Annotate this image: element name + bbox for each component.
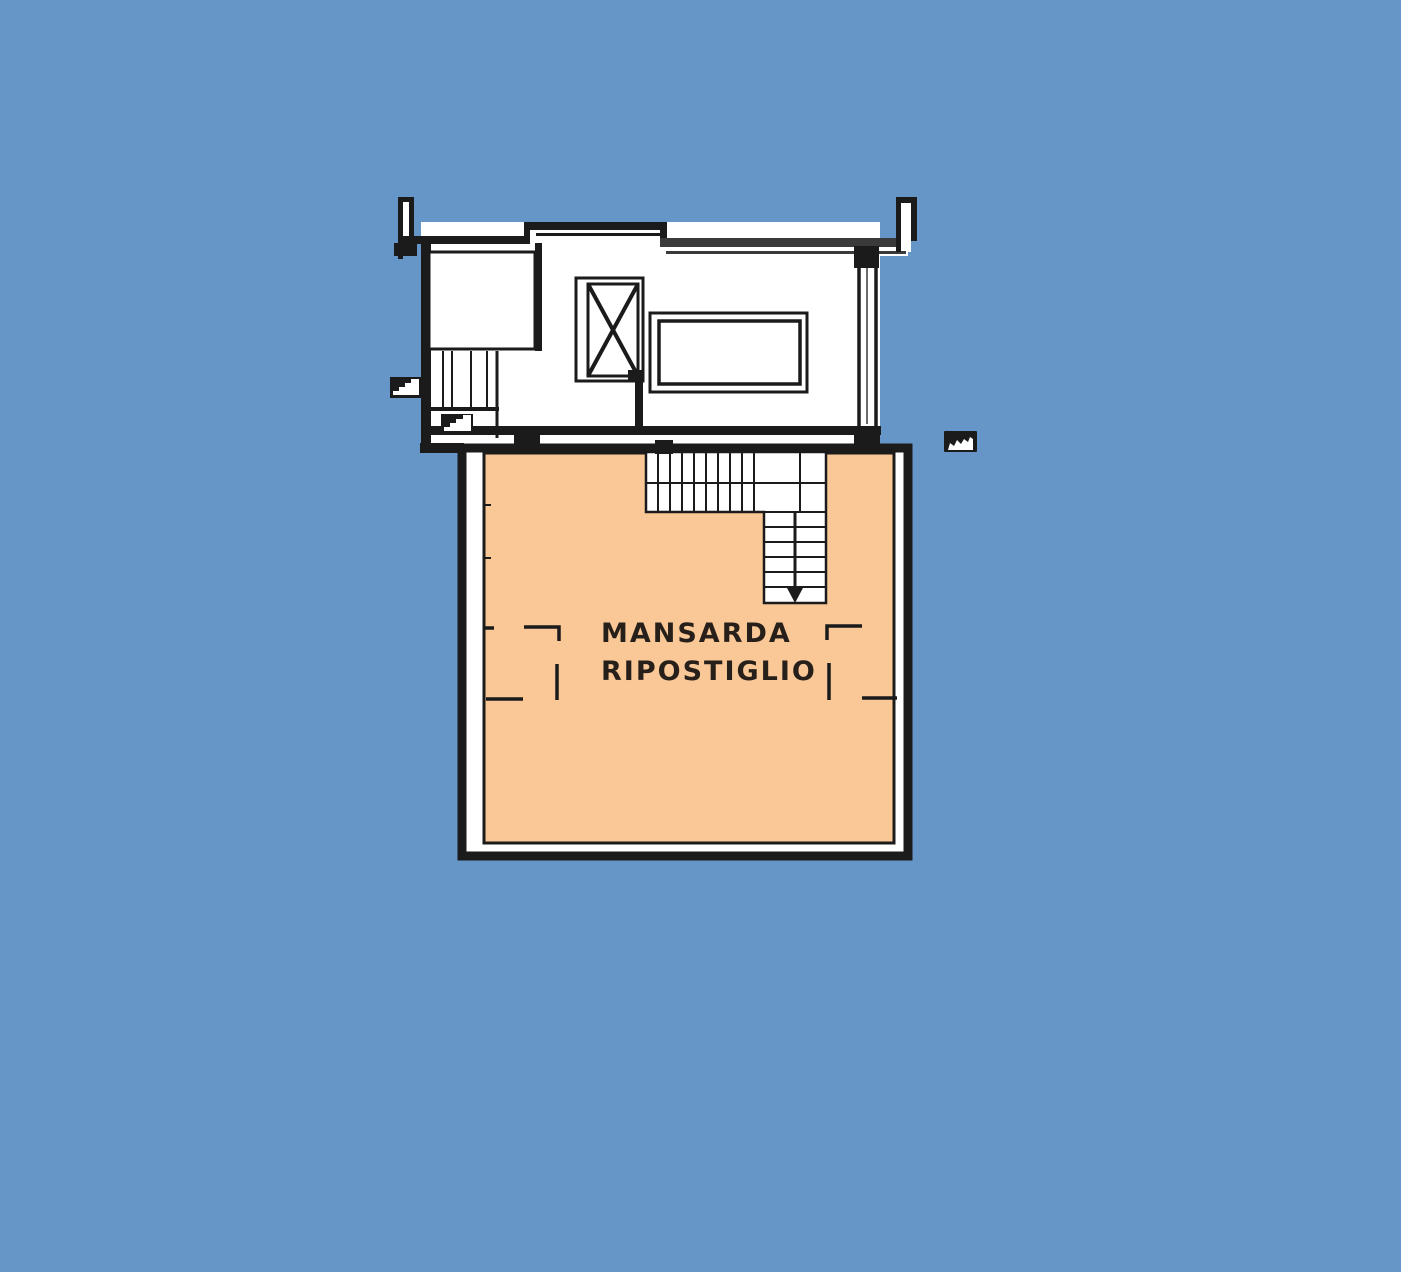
attic-room-section: MANSARDA RIPOSTIGLIO (420, 440, 908, 856)
roof-opening-outer (650, 313, 807, 392)
closet-partition-wall (535, 243, 542, 351)
top-wall-right (660, 238, 901, 247)
right-chimney-fill (901, 203, 911, 252)
left-chimney-base (394, 243, 417, 256)
left-chimney-east (409, 201, 414, 242)
bottom-wall (421, 426, 881, 435)
top-wall-step-left (524, 222, 530, 243)
shaft-wall-below (635, 380, 643, 432)
top-wall-left (403, 236, 530, 244)
attic-wall-stub-left (420, 443, 464, 453)
upper-floor-section (390, 197, 917, 454)
top-wall-raised-inner-line (536, 233, 660, 236)
room-label-line1: MANSARDA (601, 618, 792, 649)
exterior-steps-icon (390, 377, 421, 398)
plan-marker-icon (944, 431, 977, 452)
closet-room (429, 252, 535, 349)
small-steps-icon (441, 414, 473, 435)
right-window-wall (854, 246, 879, 433)
floorplan-canvas: MANSARDA RIPOSTIGLIO (0, 0, 1401, 1272)
pillar-stair-top (655, 440, 673, 454)
top-wall-raised (524, 222, 666, 230)
room-label-line2: RIPOSTIGLIO (601, 656, 817, 687)
right-chimney-west (896, 197, 901, 252)
floorplan-page: MANSARDA RIPOSTIGLIO (0, 0, 1401, 1272)
roof-opening (650, 313, 807, 392)
pillar-top-right (854, 246, 879, 268)
right-chimney-east (911, 197, 917, 241)
